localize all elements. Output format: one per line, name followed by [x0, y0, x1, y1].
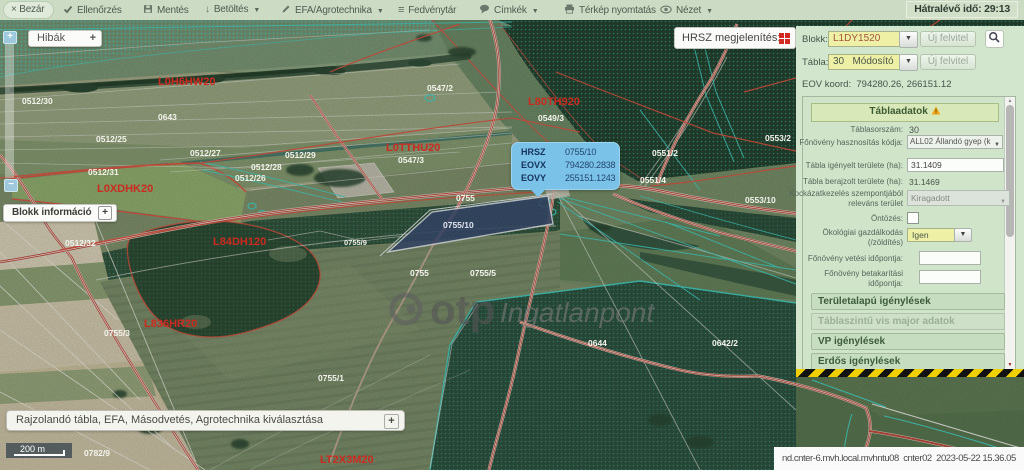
svg-text:Ingatlanpont: Ingatlanpont — [500, 297, 655, 328]
svg-text:0547/2: 0547/2 — [427, 83, 453, 93]
svg-text:L0TTHU20: L0TTHU20 — [386, 142, 440, 154]
svg-text:0547/3: 0547/3 — [398, 155, 424, 165]
svg-text:0512/26: 0512/26 — [235, 173, 266, 183]
svg-text:0755: 0755 — [410, 268, 429, 278]
svg-text:0551/2: 0551/2 — [652, 148, 678, 158]
svg-text:0755/10: 0755/10 — [443, 220, 474, 230]
svg-text:0755/3: 0755/3 — [104, 328, 130, 338]
svg-text:L836HR20: L836HR20 — [144, 318, 197, 330]
svg-text:0512/29: 0512/29 — [285, 150, 316, 160]
svg-text:L80TH920: L80TH920 — [528, 96, 580, 108]
svg-text:0551/4: 0551/4 — [640, 175, 666, 185]
svg-text:0755/5: 0755/5 — [470, 268, 496, 278]
svg-text:0782/9: 0782/9 — [84, 448, 110, 458]
svg-text:0553/10: 0553/10 — [745, 195, 776, 205]
svg-text:L84DH120: L84DH120 — [213, 236, 266, 248]
svg-text:0512/25: 0512/25 — [96, 134, 127, 144]
svg-text:0512/30: 0512/30 — [22, 96, 53, 106]
svg-text:L0XDHK20: L0XDHK20 — [97, 183, 153, 195]
svg-text:0642/2: 0642/2 — [712, 338, 738, 348]
svg-text:0755: 0755 — [456, 193, 475, 203]
svg-text:0644: 0644 — [588, 338, 607, 348]
svg-text:0755/9: 0755/9 — [344, 238, 367, 247]
svg-text:0549/3: 0549/3 — [538, 113, 564, 123]
svg-text:0512/27: 0512/27 — [190, 148, 221, 158]
svg-text:0643: 0643 — [158, 112, 177, 122]
svg-text:0553/2: 0553/2 — [765, 133, 791, 143]
svg-text:LT2X3M20: LT2X3M20 — [320, 454, 374, 466]
svg-text:0512/31: 0512/31 — [88, 167, 119, 177]
svg-text:otp: otp — [430, 286, 495, 333]
svg-text:0755/1: 0755/1 — [318, 373, 344, 383]
svg-text:0512/32: 0512/32 — [65, 238, 96, 248]
svg-text:0512/28: 0512/28 — [251, 162, 282, 172]
svg-text:L0H6HW20: L0H6HW20 — [158, 76, 215, 88]
